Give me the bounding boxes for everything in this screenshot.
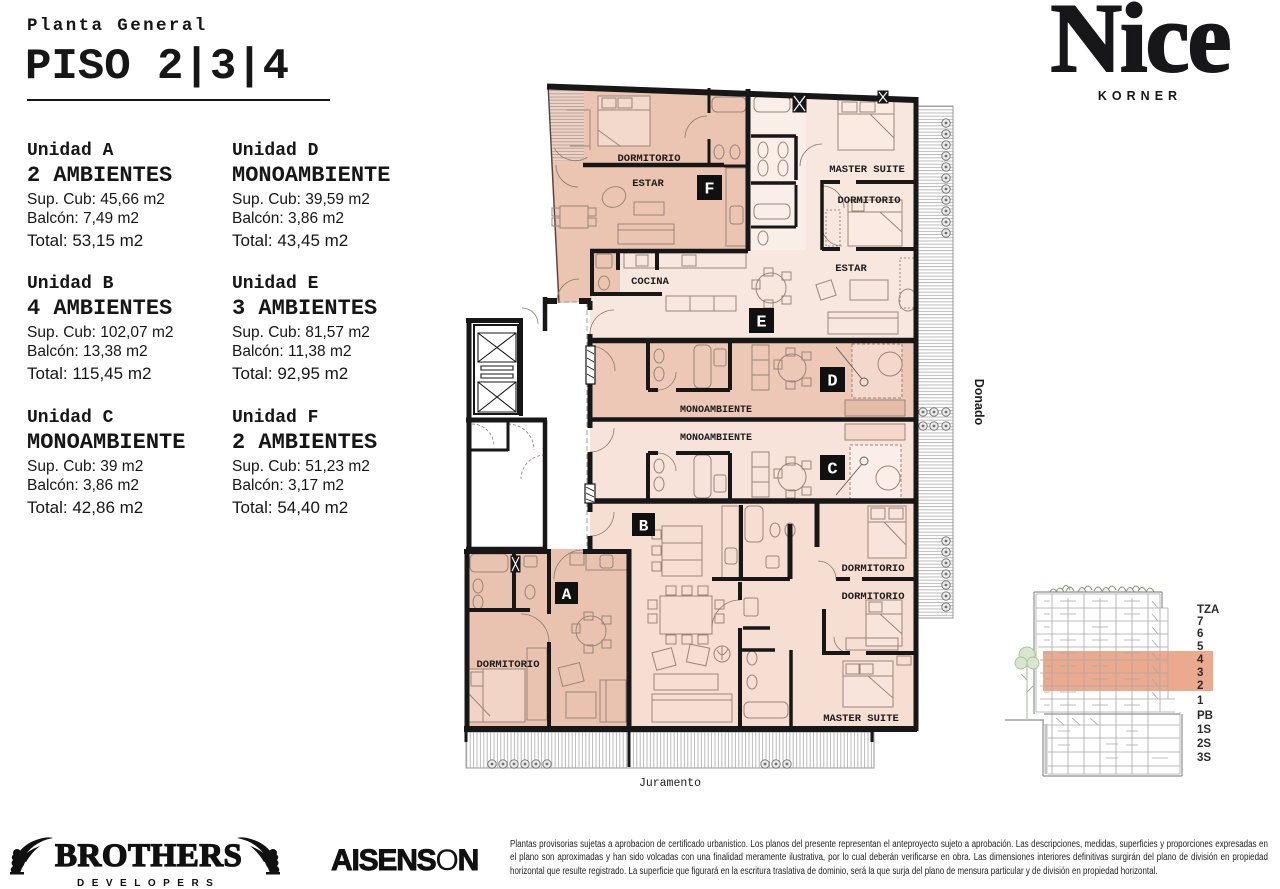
svg-text:MONOAMBIENTE: MONOAMBIENTE [680,405,752,416]
svg-text:MASTER SUITE: MASTER SUITE [829,164,905,176]
svg-text:DORMITORIO: DORMITORIO [841,563,904,575]
svg-text:5: 5 [1197,641,1204,653]
svg-text:PB: PB [1197,710,1213,722]
svg-text:E: E [756,314,766,333]
svg-text:TZA: TZA [1197,604,1219,616]
svg-text:2S: 2S [1197,738,1211,750]
svg-text:3: 3 [1197,667,1203,679]
svg-text:F: F [704,181,714,200]
svg-text:ESTAR: ESTAR [632,178,664,190]
svg-text:4: 4 [1197,654,1204,666]
svg-text:6: 6 [1197,628,1203,640]
svg-text:MONOAMBIENTE: MONOAMBIENTE [680,433,752,444]
svg-text:COCINA: COCINA [631,276,670,288]
svg-text:DORMITORIO: DORMITORIO [476,659,539,671]
svg-text:3S: 3S [1197,752,1211,764]
svg-text:D: D [827,373,837,392]
svg-text:ESTAR: ESTAR [835,263,867,275]
svg-text:Juramento: Juramento [639,777,701,790]
svg-text:1S: 1S [1197,724,1211,736]
svg-text:C: C [827,461,837,480]
svg-text:DORMITORIO: DORMITORIO [837,195,900,207]
svg-text:A: A [562,586,572,604]
svg-text:B: B [639,518,649,536]
svg-text:DORMITORIO: DORMITORIO [617,153,680,165]
svg-text:1: 1 [1197,695,1204,707]
svg-text:MASTER SUITE: MASTER SUITE [823,713,899,725]
svg-text:DORMITORIO: DORMITORIO [841,591,904,603]
svg-text:Donado: Donado [972,379,986,426]
svg-text:7: 7 [1197,616,1203,628]
svg-text:2: 2 [1197,680,1203,692]
